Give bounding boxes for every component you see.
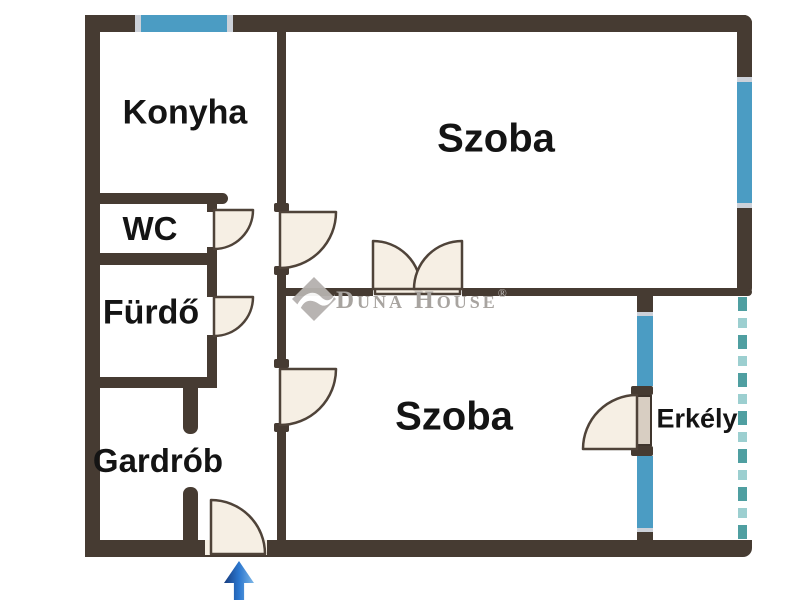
duna-house-logo-icon: [292, 277, 336, 321]
room-label-szoba-also: Szoba: [395, 395, 513, 440]
door-arc-room1: [280, 212, 336, 268]
room-label-szoba-felso: Szoba: [437, 117, 555, 162]
door-arc-balcony: [583, 395, 637, 449]
room-label-konyha: Konyha: [123, 94, 248, 133]
door-arc-wc: [214, 210, 253, 249]
double-door-right-arc: [414, 241, 462, 289]
duna-house-watermark: Duna House®: [336, 287, 507, 315]
door-arc-entrance: [211, 500, 265, 554]
door-arc-bathroom: [214, 297, 253, 336]
room-label-gardrob: Gardrób: [93, 442, 223, 480]
registered-trademark-symbol: ®: [498, 286, 507, 300]
room-label-wc: WC: [123, 210, 178, 248]
room-label-erkely: Erkély: [656, 404, 737, 435]
floorplan-canvas: Duna House® Konyha WC Fürdő Gardrób Szob…: [0, 0, 800, 600]
watermark-brand-text: Duna House: [336, 287, 498, 314]
door-arc-room2: [280, 369, 336, 425]
room-label-furdo: Fürdő: [103, 294, 199, 333]
